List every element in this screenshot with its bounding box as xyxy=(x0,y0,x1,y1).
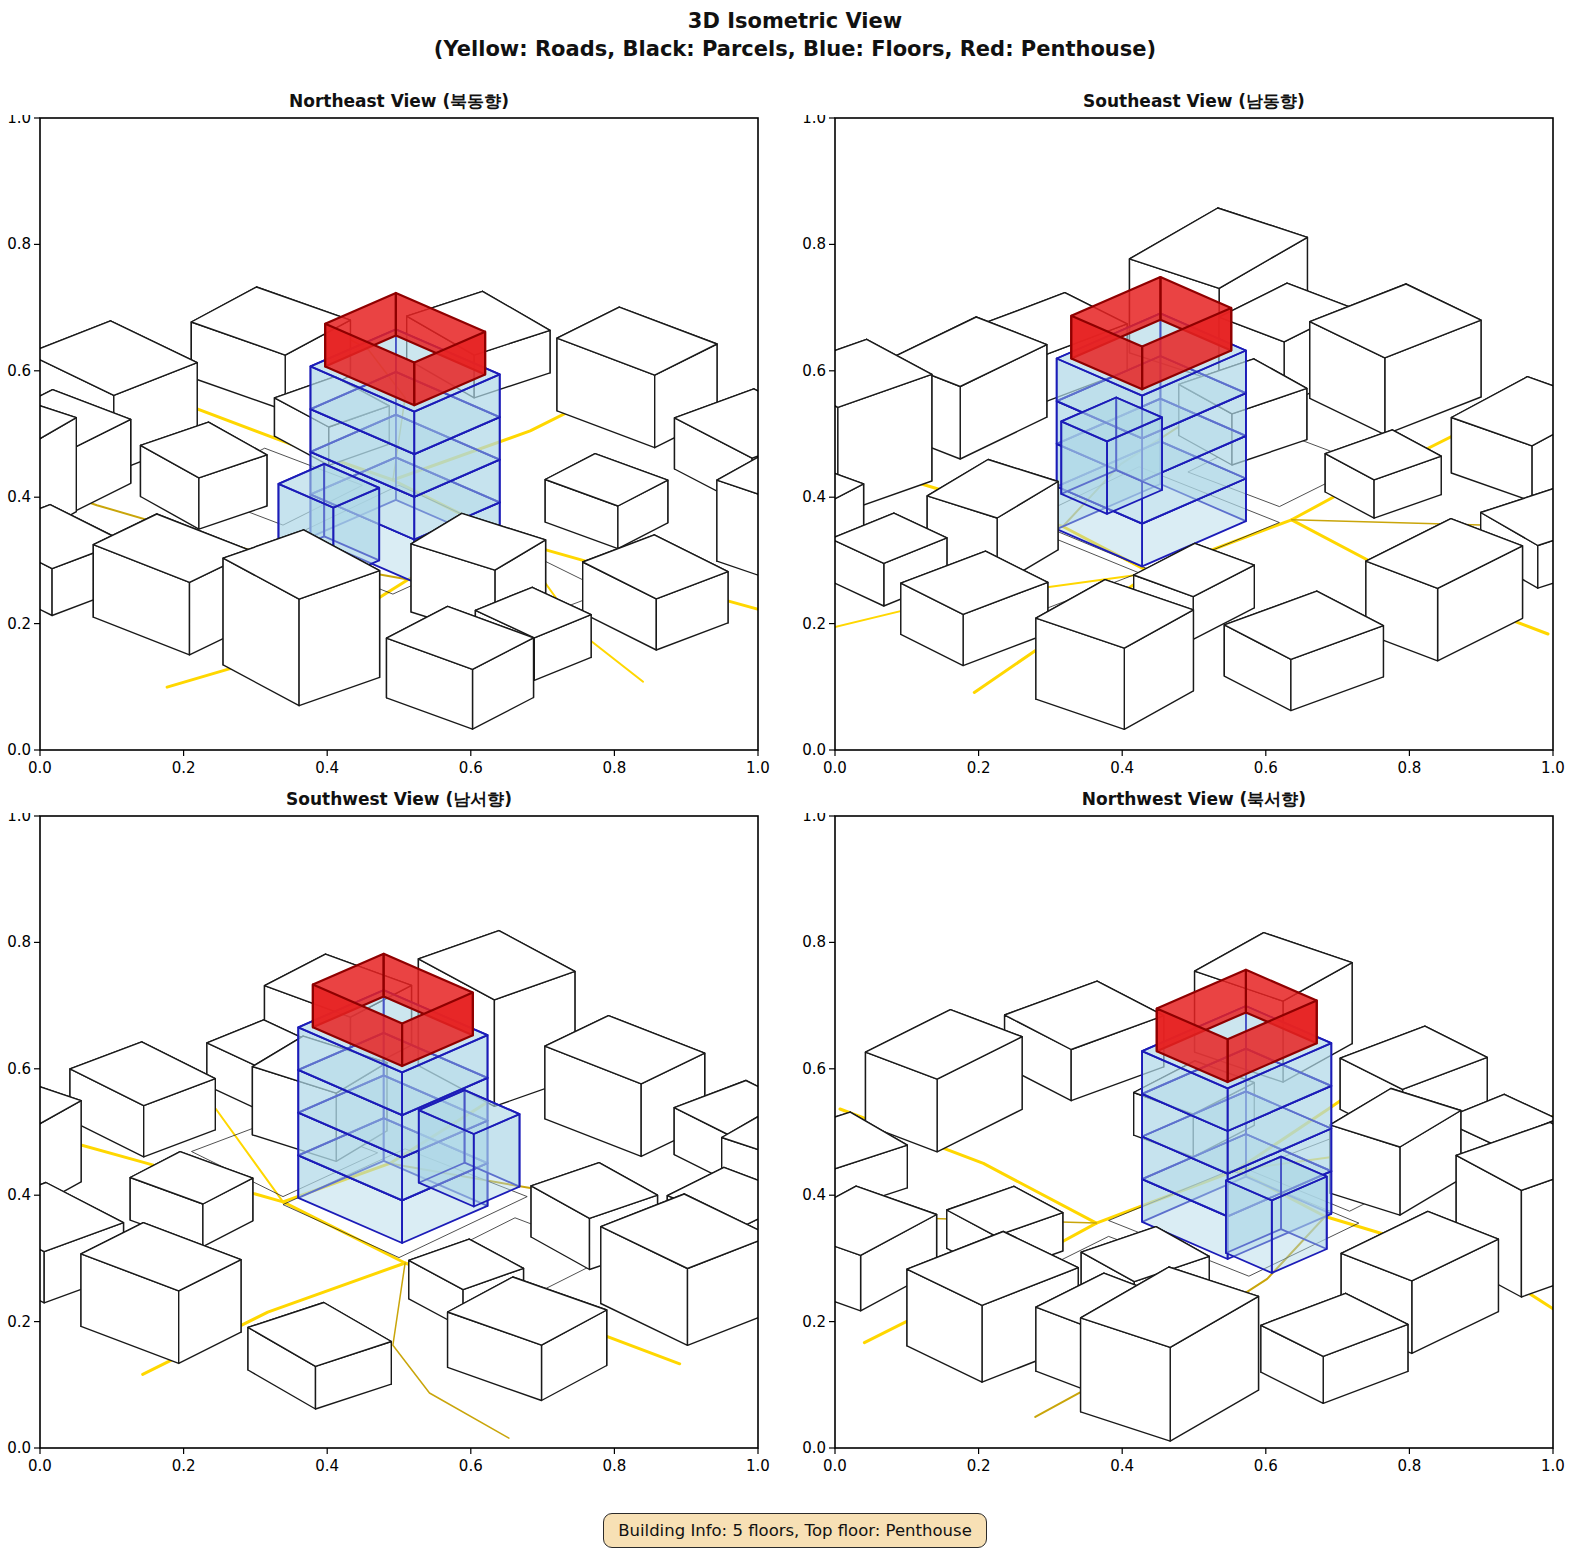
figure-title: 3D Isometric View xyxy=(0,0,1590,36)
svg-text:0.4: 0.4 xyxy=(1110,759,1134,777)
svg-text:0.2: 0.2 xyxy=(172,759,196,777)
subplot-grid: Northeast View (북동향) 0.00.00.20.20.40.40… xyxy=(0,89,1590,1485)
svg-text:0.4: 0.4 xyxy=(7,1187,31,1205)
svg-text:1.0: 1.0 xyxy=(802,115,826,127)
svg-text:0.0: 0.0 xyxy=(802,741,826,759)
svg-text:0.2: 0.2 xyxy=(7,615,31,633)
figure-subtitle: (Yellow: Roads, Black: Parcels, Blue: Fl… xyxy=(0,36,1590,64)
svg-text:0.0: 0.0 xyxy=(823,759,847,777)
subplot-northwest: Northwest View (북서향) 0.00.00.20.20.40.40… xyxy=(795,787,1590,1485)
svg-text:0.2: 0.2 xyxy=(967,759,991,777)
svg-text:0.4: 0.4 xyxy=(802,489,826,507)
svg-text:0.0: 0.0 xyxy=(28,1457,52,1475)
building-info-badge: Building Info: 5 floors, Top floor: Pent… xyxy=(603,1513,987,1548)
svg-text:0.4: 0.4 xyxy=(802,1187,826,1205)
svg-text:0.6: 0.6 xyxy=(7,1060,31,1078)
plot-canvas-southwest: 0.00.00.20.20.40.40.60.60.80.81.01.0 xyxy=(0,813,790,1483)
svg-text:0.2: 0.2 xyxy=(802,615,826,633)
subplot-title-southwest: Southwest View (남서향) xyxy=(40,787,758,811)
svg-text:0.4: 0.4 xyxy=(315,759,339,777)
svg-text:0.2: 0.2 xyxy=(7,1313,31,1331)
svg-text:0.6: 0.6 xyxy=(459,759,483,777)
svg-text:0.0: 0.0 xyxy=(802,1439,826,1457)
figure: 3D Isometric View (Yellow: Roads, Black:… xyxy=(0,0,1590,1560)
subplot-southeast: Southeast View (남동향) 0.00.00.20.20.40.40… xyxy=(795,89,1590,787)
subplot-title-northwest: Northwest View (북서향) xyxy=(835,787,1553,811)
svg-text:0.8: 0.8 xyxy=(1397,759,1421,777)
svg-text:0.0: 0.0 xyxy=(823,1457,847,1475)
svg-text:0.8: 0.8 xyxy=(1397,1457,1421,1475)
plot-canvas-northeast: 0.00.00.20.20.40.40.60.60.80.81.01.0 xyxy=(0,115,790,785)
svg-text:1.0: 1.0 xyxy=(746,759,770,777)
svg-text:0.2: 0.2 xyxy=(967,1457,991,1475)
svg-text:0.4: 0.4 xyxy=(1110,1457,1134,1475)
svg-text:0.6: 0.6 xyxy=(459,1457,483,1475)
svg-text:0.6: 0.6 xyxy=(7,362,31,380)
subplot-title-northeast: Northeast View (북동향) xyxy=(40,89,758,113)
svg-text:0.6: 0.6 xyxy=(802,1060,826,1078)
svg-text:0.4: 0.4 xyxy=(315,1457,339,1475)
svg-text:1.0: 1.0 xyxy=(802,813,826,825)
svg-text:1.0: 1.0 xyxy=(1541,759,1565,777)
svg-text:0.8: 0.8 xyxy=(602,1457,626,1475)
svg-text:0.4: 0.4 xyxy=(7,489,31,507)
plot-canvas-southeast: 0.00.00.20.20.40.40.60.60.80.81.01.0 xyxy=(795,115,1585,785)
svg-text:0.8: 0.8 xyxy=(7,236,31,254)
svg-text:0.0: 0.0 xyxy=(7,741,31,759)
svg-text:0.6: 0.6 xyxy=(1254,759,1278,777)
svg-text:1.0: 1.0 xyxy=(7,115,31,127)
plot-canvas-northwest: 0.00.00.20.20.40.40.60.60.80.81.01.0 xyxy=(795,813,1585,1483)
svg-text:0.0: 0.0 xyxy=(28,759,52,777)
svg-text:0.6: 0.6 xyxy=(802,362,826,380)
svg-text:0.8: 0.8 xyxy=(802,236,826,254)
svg-text:0.2: 0.2 xyxy=(802,1313,826,1331)
svg-text:1.0: 1.0 xyxy=(746,1457,770,1475)
svg-text:0.8: 0.8 xyxy=(602,759,626,777)
svg-text:1.0: 1.0 xyxy=(7,813,31,825)
svg-text:0.8: 0.8 xyxy=(802,934,826,952)
svg-text:0.0: 0.0 xyxy=(7,1439,31,1457)
subplot-northeast: Northeast View (북동향) 0.00.00.20.20.40.40… xyxy=(0,89,795,787)
svg-text:1.0: 1.0 xyxy=(1541,1457,1565,1475)
subplot-southwest: Southwest View (남서향) 0.00.00.20.20.40.40… xyxy=(0,787,795,1485)
svg-text:0.8: 0.8 xyxy=(7,934,31,952)
subplot-title-southeast: Southeast View (남동향) xyxy=(835,89,1553,113)
footer: Building Info: 5 floors, Top floor: Pent… xyxy=(0,1513,1590,1548)
svg-text:0.2: 0.2 xyxy=(172,1457,196,1475)
svg-text:0.6: 0.6 xyxy=(1254,1457,1278,1475)
